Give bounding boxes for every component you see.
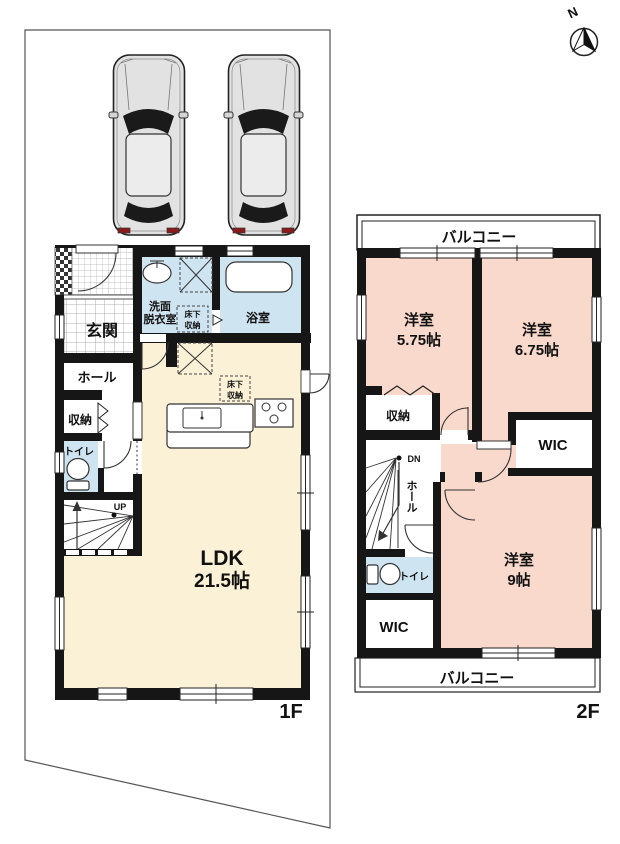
room-porch [72, 247, 133, 295]
label-bedroom3: 洋室 [504, 551, 534, 569]
toilet-icon-1f [67, 459, 89, 491]
svg-text:床下: 床下 [185, 309, 201, 319]
label-hall-1f: ホール [77, 370, 116, 385]
floor-label-1f: 1F [279, 701, 302, 723]
label-washroom-1: 洗面 [149, 299, 171, 313]
bathtub-icon [226, 262, 292, 292]
label-wic-south: WIC [379, 619, 408, 636]
label-washroom-2: 脱衣室 [144, 312, 177, 326]
svg-text:収納: 収納 [185, 320, 201, 330]
stove-icon [255, 399, 293, 427]
hall-ldk-sliding-door [133, 402, 142, 439]
label-ldk-size: 21.5帖 [194, 569, 250, 592]
label-storage-1f: 収納 [68, 412, 92, 427]
label-bedroom1-size: 5.75帖 [397, 331, 441, 349]
label-toilet-2f: トイレ [399, 571, 429, 583]
label-storage-2f: 収納 [386, 408, 410, 423]
car-1 [109, 55, 188, 235]
label-toilet-1f: トイレ [64, 446, 94, 458]
closet-folding-door-1f [98, 403, 108, 419]
label-bedroom2: 洋室 [522, 321, 552, 339]
label-dn: DN [408, 454, 421, 464]
label-hall-2f: ホール [405, 480, 418, 513]
floor-label-2f: 2F [576, 701, 599, 723]
ldk-back-door [310, 374, 329, 393]
room-porch-step [55, 247, 72, 295]
floorplan-page: N [0, 0, 620, 844]
label-bedroom2-size: 6.75帖 [515, 341, 559, 359]
floor1-plan: UP [55, 245, 329, 723]
label-balcony-bottom: バルコニー [440, 670, 515, 687]
label-bedroom3-size: 9帖 [507, 571, 530, 589]
label-balcony-top: バルコニー [442, 229, 517, 246]
compass-label: N [565, 4, 580, 22]
car-2 [224, 55, 303, 235]
label-bedroom1: 洋室 [404, 311, 434, 329]
label-genkan: 玄関 [86, 321, 118, 340]
toilet-icon-2f [367, 564, 400, 585]
compass-icon: N [565, 4, 597, 56]
stairs-2f [366, 456, 402, 550]
label-ldk: LDK [200, 547, 243, 570]
entrance-door [76, 245, 118, 253]
label-up: UP [114, 502, 127, 512]
label-bathroom: 浴室 [246, 310, 270, 325]
svg-text:床下: 床下 [227, 379, 243, 389]
toilet-door-1f [104, 441, 131, 468]
bedroom2-door [477, 441, 511, 449]
svg-text:収納: 収納 [227, 390, 243, 400]
floorplan-canvas: N [0, 0, 620, 844]
toilet-door-2f [405, 525, 433, 553]
kitchen-counter [167, 404, 253, 448]
label-wic-east: WIC [538, 437, 567, 454]
floor2-plan: DN バルコニー 洋室 5.75帖 洋室 6.75帖 収納 WIC ホール トイ… [355, 215, 601, 723]
